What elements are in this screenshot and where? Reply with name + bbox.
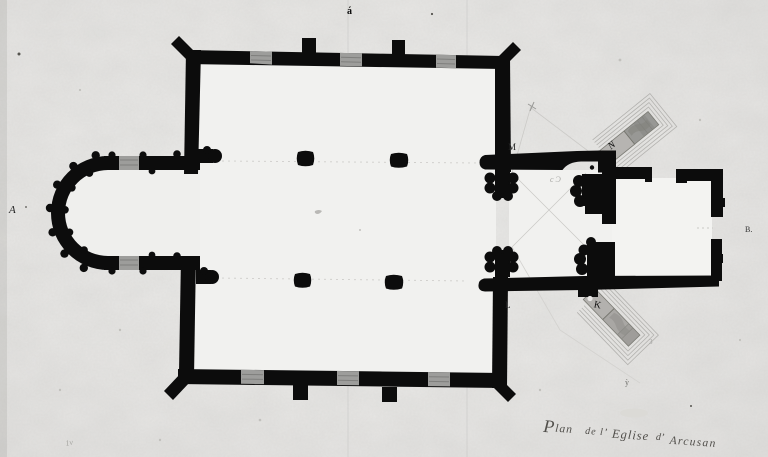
svg-text:B.: B. bbox=[745, 225, 752, 234]
svg-text:3: 3 bbox=[649, 338, 653, 346]
svg-text:d’: d’ bbox=[656, 432, 666, 444]
svg-text:de l’: de l’ bbox=[585, 426, 609, 439]
svg-text:Eglise: Eglise bbox=[611, 427, 650, 444]
svg-text:ỳ: ỳ bbox=[625, 378, 629, 387]
svg-text:L: L bbox=[505, 300, 511, 310]
svg-text:A: A bbox=[8, 204, 16, 216]
svg-text:á: á bbox=[347, 6, 352, 17]
svg-text:lan: lan bbox=[555, 423, 573, 436]
svg-text:c Ɔ: c Ɔ bbox=[550, 175, 562, 184]
svg-text:P: P bbox=[542, 416, 555, 437]
svg-text:M: M bbox=[508, 142, 516, 152]
